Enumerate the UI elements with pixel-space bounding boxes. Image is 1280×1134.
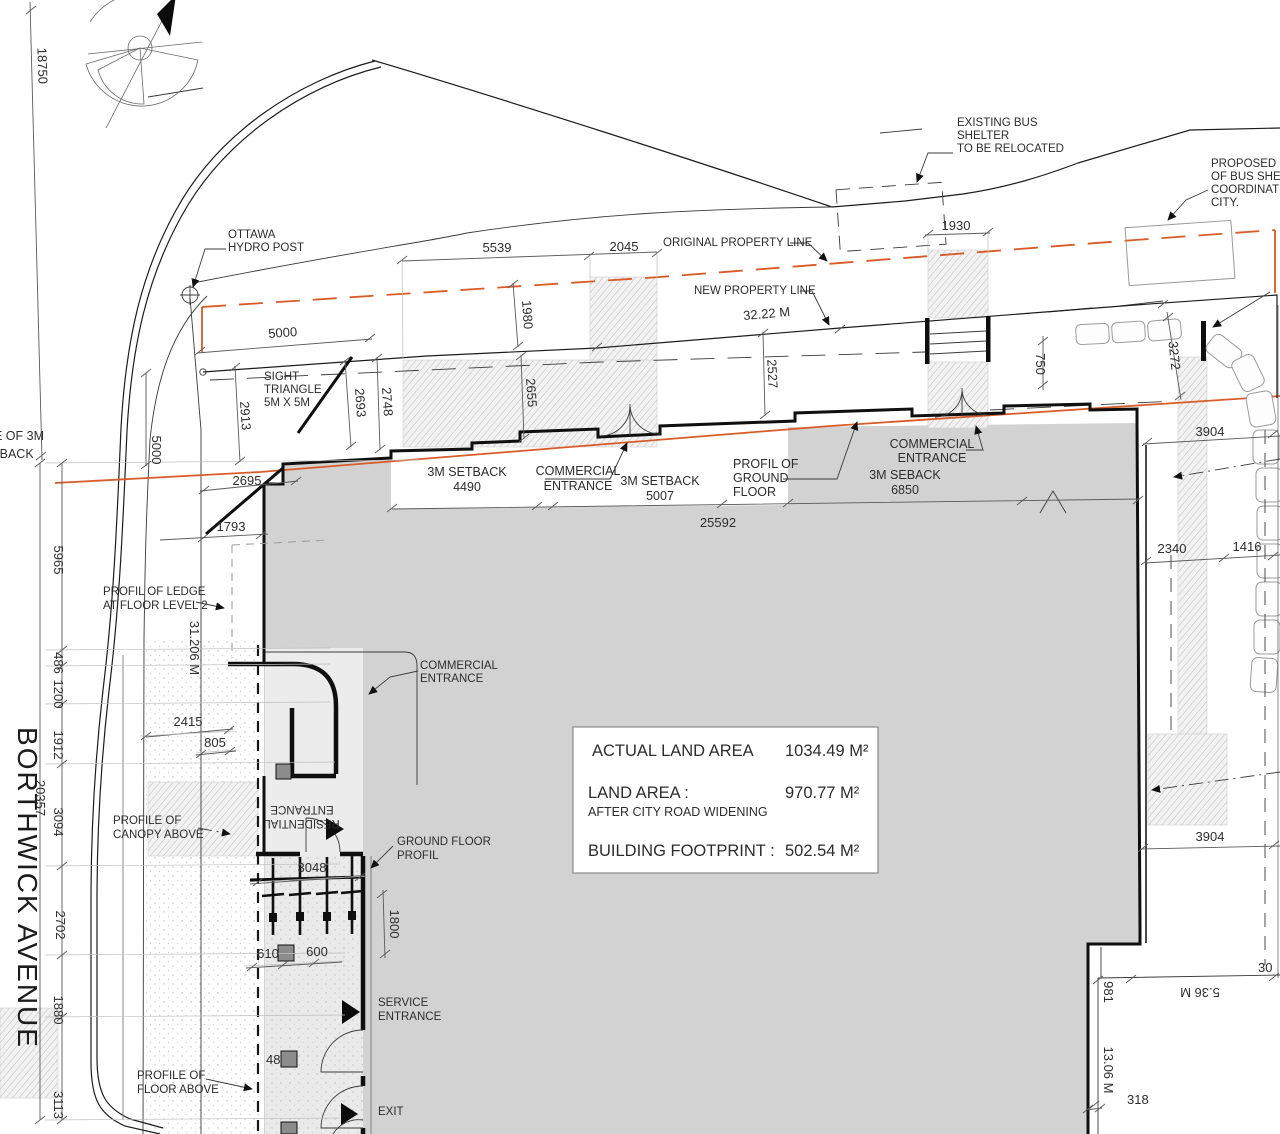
seback-c-label: 3M SEBACK: [869, 468, 941, 482]
dim-3113: 3113: [51, 1091, 66, 1119]
profil-ground-3: FLOOR: [733, 485, 776, 499]
profil-ground-1: PROFIL OF: [733, 457, 799, 471]
dim-3272: 3272: [1166, 340, 1184, 370]
canopy-2: CANOPY ABOVE: [113, 829, 204, 841]
bus-stop-post: [1201, 321, 1206, 361]
road-top-edge: [372, 60, 1280, 207]
dim-805: 805: [204, 735, 226, 750]
dim-48: 48: [266, 1052, 280, 1067]
setback-a-value: 4490: [453, 480, 481, 494]
commercial-2b: ENTRANCE: [898, 451, 967, 465]
dim-750: 750: [1033, 353, 1048, 375]
land-area-value: 970.77 M²: [785, 784, 860, 802]
existing-bus-shelter: [836, 182, 946, 251]
dim-25592: 25592: [700, 515, 736, 530]
north-arrow-icon: [86, 0, 202, 128]
exit-label: EXIT: [378, 1106, 404, 1118]
dim-3048: 3048: [298, 860, 327, 875]
dim-981: 981: [1101, 981, 1116, 1003]
setback-b-label: 3M SETBACK: [620, 474, 700, 488]
dim-3094: 3094: [51, 808, 66, 837]
floor-above-2: FLOOR ABOVE: [137, 1084, 219, 1096]
dim-2748: 2748: [379, 387, 396, 417]
proposed-bus-shelter: [1125, 220, 1235, 285]
commercial-1c: COMMERCIAL: [420, 660, 499, 672]
dim-30: 30: [1258, 960, 1272, 975]
dim-2340: 2340: [1158, 541, 1187, 556]
building-footprint-value: 502.54 M²: [785, 842, 860, 860]
dim-2655: 2655: [523, 378, 540, 408]
dim-20357: 20357: [33, 780, 48, 816]
building-footprint-label: BUILDING FOOTPRINT :: [588, 842, 775, 860]
dim-486: 486: [51, 652, 66, 674]
dim-18750: 18750: [34, 48, 50, 85]
street-name: BORTHWICK AVENUE: [12, 727, 43, 1049]
dim-1980: 1980: [519, 300, 536, 330]
crosswalk: [925, 316, 991, 364]
hydro-post-icon: [180, 285, 200, 305]
lane-dash: [880, 129, 922, 133]
sight-label-1: SIGHT: [264, 371, 299, 383]
ledge-1: PROFIL OF LEDGE: [103, 586, 206, 598]
sidewalk-stipple: [146, 640, 262, 1134]
edge-setback-2: TBACK: [0, 447, 34, 461]
dim-1416: 1416: [1233, 539, 1262, 554]
proposed-bus-4: CITY.: [1211, 197, 1239, 209]
dim-318: 318: [1127, 1092, 1149, 1107]
new-pl-label: NEW PROPERTY LINE: [694, 285, 816, 297]
existing-bus-2: SHELTER: [957, 130, 1009, 142]
proposed-bus-3: COORDINATED: [1211, 184, 1280, 196]
dim-5-36: 5.36 M: [1180, 985, 1220, 1000]
edge-setback-1: E OF 3M: [0, 429, 44, 443]
dim-2415: 2415: [174, 714, 203, 729]
land-area-label: LAND AREA :: [588, 784, 689, 802]
dim-1793: 1793: [217, 519, 246, 534]
svg-text:RESIDENTIAL: RESIDENTIAL: [264, 817, 340, 829]
commercial-1b: COMMERCIAL: [890, 437, 975, 451]
commercial-2a: ENTRANCE: [544, 479, 613, 493]
land-area-note: AFTER CITY ROAD WIDENING: [588, 805, 768, 819]
setback-a-label: 3M SETBACK: [427, 465, 507, 479]
dim-2045: 2045: [610, 239, 639, 254]
bus-shelters: [836, 182, 1235, 285]
sight-label-2: TRIANGLE: [264, 384, 322, 396]
dim-2702: 2702: [53, 911, 68, 940]
dim-13-06: 13.06 M: [1101, 1047, 1116, 1094]
original-pl-label: ORIGINAL PROPERTY LINE: [663, 237, 813, 249]
dim-1930: 1930: [942, 218, 971, 233]
hydro-label-1: OTTAWA: [228, 229, 276, 241]
lane-dash: [148, 88, 203, 97]
new-property-line: [203, 295, 1277, 398]
dim-5000-top: 5000: [268, 324, 298, 341]
service-2: ENTRANCE: [378, 1011, 442, 1023]
site-plan-canvas: ACTUAL LAND AREA 1034.49 M² LAND AREA : …: [0, 0, 1280, 1134]
dim-2695: 2695: [233, 473, 262, 488]
commercial-2c: ENTRANCE: [420, 673, 484, 685]
seback-c-value: 6850: [891, 483, 919, 497]
dim-2527: 2527: [764, 359, 780, 389]
dim-3904-bot: 3904: [1196, 829, 1225, 844]
ground-profil-2: PROFIL: [397, 850, 439, 862]
proposed-bus-1: PROPOSED LO: [1211, 158, 1280, 170]
dim-32-22: 32.22 M: [743, 304, 791, 323]
dim-610: 610: [257, 946, 279, 961]
proposed-bus-2: OF BUS SHELT: [1211, 171, 1280, 183]
dim-5965: 5965: [51, 546, 66, 575]
site-plan-drawing: ACTUAL LAND AREA 1034.49 M² LAND AREA : …: [0, 0, 1280, 1134]
dim-1800: 1800: [387, 910, 402, 939]
profil-ground-2: GROUND: [733, 471, 789, 485]
ground-profil-1: GROUND FLOOR: [397, 836, 491, 848]
dim-5539: 5539: [483, 240, 512, 255]
dim-31-206: 31.206 M: [187, 621, 202, 675]
dim-2693: 2693: [352, 388, 369, 418]
dim-3904-top: 3904: [1196, 424, 1225, 439]
west-walkway-stipple: [265, 856, 363, 1134]
dim-600: 600: [306, 944, 328, 959]
dim-1200: 1200: [51, 680, 66, 709]
dim-1912: 1912: [51, 731, 66, 760]
dim-2913: 2913: [237, 401, 254, 431]
setback-b-value: 5007: [646, 489, 674, 503]
north-needle: [157, 0, 176, 36]
hydro-label-2: HYDRO POST: [228, 242, 304, 254]
existing-bus-3: TO BE RELOCATED: [957, 143, 1064, 155]
actual-land-area-value: 1034.49 M²: [785, 742, 869, 760]
dim-5000-left: 5000: [149, 436, 164, 465]
existing-bus-1: EXISTING BUS: [957, 117, 1038, 129]
dim-1880: 1880: [51, 996, 66, 1025]
svg-text:ENTRANCE: ENTRANCE: [270, 803, 334, 815]
ledge-2: AT FLOOR LEVEL 2: [103, 600, 208, 612]
commercial-1a: COMMERCIAL: [536, 464, 621, 478]
canopy-1: PROFILE OF: [113, 815, 181, 827]
actual-land-area-label: ACTUAL LAND AREA: [592, 742, 754, 760]
sight-label-3: 5M X 5M: [264, 397, 310, 409]
area-summary-box: ACTUAL LAND AREA 1034.49 M² LAND AREA : …: [573, 727, 878, 873]
service-1: SERVICE: [378, 997, 429, 1009]
floor-above-1: PROFILE OF: [137, 1070, 205, 1082]
